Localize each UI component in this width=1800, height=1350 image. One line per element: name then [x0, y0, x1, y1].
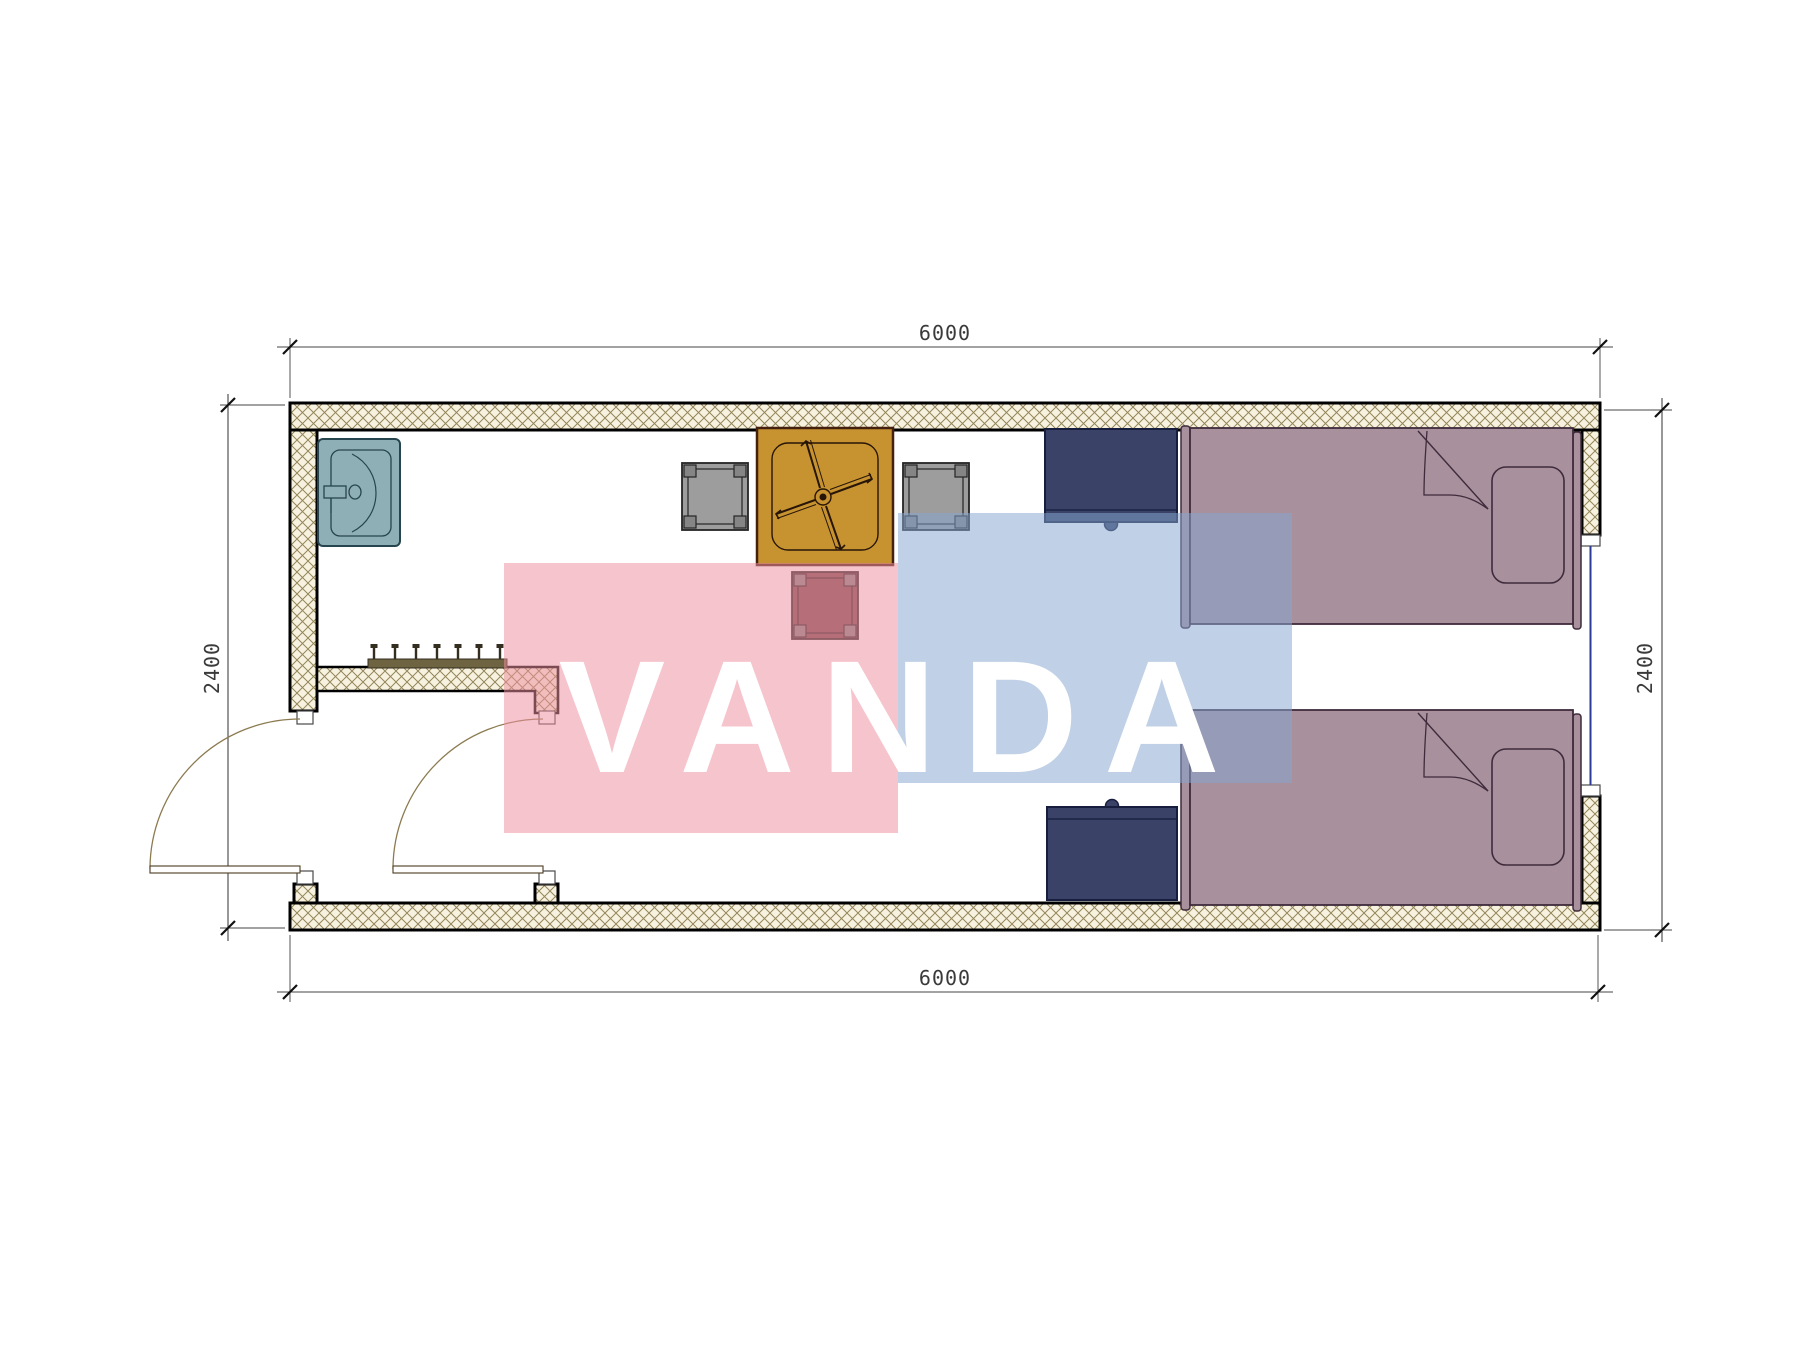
- watermark-text: VANDA: [558, 627, 1245, 806]
- door-post-right: [535, 884, 558, 903]
- wall-right-upper: [1582, 430, 1600, 535]
- dining-table: [757, 428, 893, 565]
- coat-rack: [368, 644, 507, 668]
- wall-bottom: [290, 903, 1600, 930]
- stool-left: [682, 463, 748, 530]
- entry-door-left: [150, 719, 300, 873]
- dim-right-label: 2400: [1633, 642, 1657, 694]
- nightstand-bottom: [1047, 800, 1177, 901]
- dim-bottom-label: 6000: [919, 966, 971, 990]
- sink: [318, 439, 400, 546]
- door-post-left: [294, 884, 317, 903]
- wall-right-lower: [1582, 796, 1600, 903]
- dim-left-label: 2400: [200, 642, 224, 694]
- watermark: VANDA: [504, 513, 1292, 833]
- wall-left: [290, 430, 317, 711]
- wall-top: [290, 403, 1600, 430]
- dim-top-label: 6000: [919, 321, 971, 345]
- floor-plan-drawing: 6000 6000 2400 2400: [0, 0, 1800, 1350]
- floor-plan-page: 6000 6000 2400 2400: [0, 0, 1800, 1350]
